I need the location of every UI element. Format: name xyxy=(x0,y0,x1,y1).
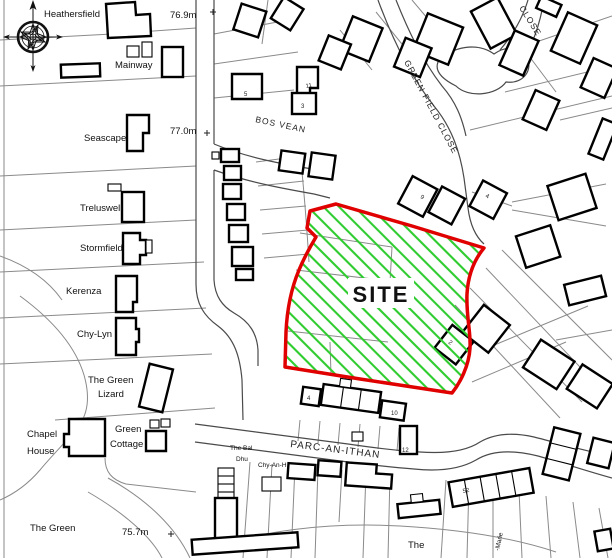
place-label-green: Green xyxy=(115,424,141,435)
spot-height-757: 75.7m xyxy=(122,527,148,538)
site-area: SITE xyxy=(285,204,484,393)
place-label-mainway: Mainway xyxy=(115,60,153,71)
site-plan-map: SITE Heathersfield Mainway Seascape Trel… xyxy=(0,0,612,558)
place-label-dhu: Dhu xyxy=(236,456,248,463)
place-label-the: The xyxy=(408,540,424,551)
place-label-house: House xyxy=(27,446,54,457)
place-label-seascape: Seascape xyxy=(84,133,126,144)
place-label-the-green-lizard-1: The Green xyxy=(88,375,133,386)
spot-height-770: 77.0m xyxy=(170,126,196,137)
place-label-the-bal: The Bal xyxy=(230,445,253,452)
house-number: 12 xyxy=(402,448,409,454)
map-canvas: SITE Heathersfield Mainway Seascape Trel… xyxy=(0,0,612,558)
place-label-kerenza: Kerenza xyxy=(66,286,102,297)
place-label-stormfield: Stormfield xyxy=(80,243,123,254)
place-label-the-green: The Green xyxy=(30,523,75,534)
place-label-heathersfield: Heathersfield xyxy=(44,9,100,20)
place-label-chy-an-h: Chy-An-H xyxy=(258,462,287,469)
road-label-bos-vean: BOS VEAN xyxy=(255,114,307,134)
place-label-cottage: Cottage xyxy=(110,439,143,450)
place-label-chy-lyn: Chy-Lyn xyxy=(77,329,112,340)
place-label-treluswell: Treluswell xyxy=(80,203,122,214)
benchmark-crosses xyxy=(168,9,216,537)
spot-height-769: 76.9m xyxy=(170,10,196,21)
place-label-chapel: Chapel xyxy=(27,429,57,440)
place-label-the-green-lizard-2: Lizard xyxy=(98,389,124,400)
site-label: SITE xyxy=(353,282,410,307)
house-number: 10 xyxy=(391,411,398,417)
place-label-marie: -Marie xyxy=(494,532,505,552)
